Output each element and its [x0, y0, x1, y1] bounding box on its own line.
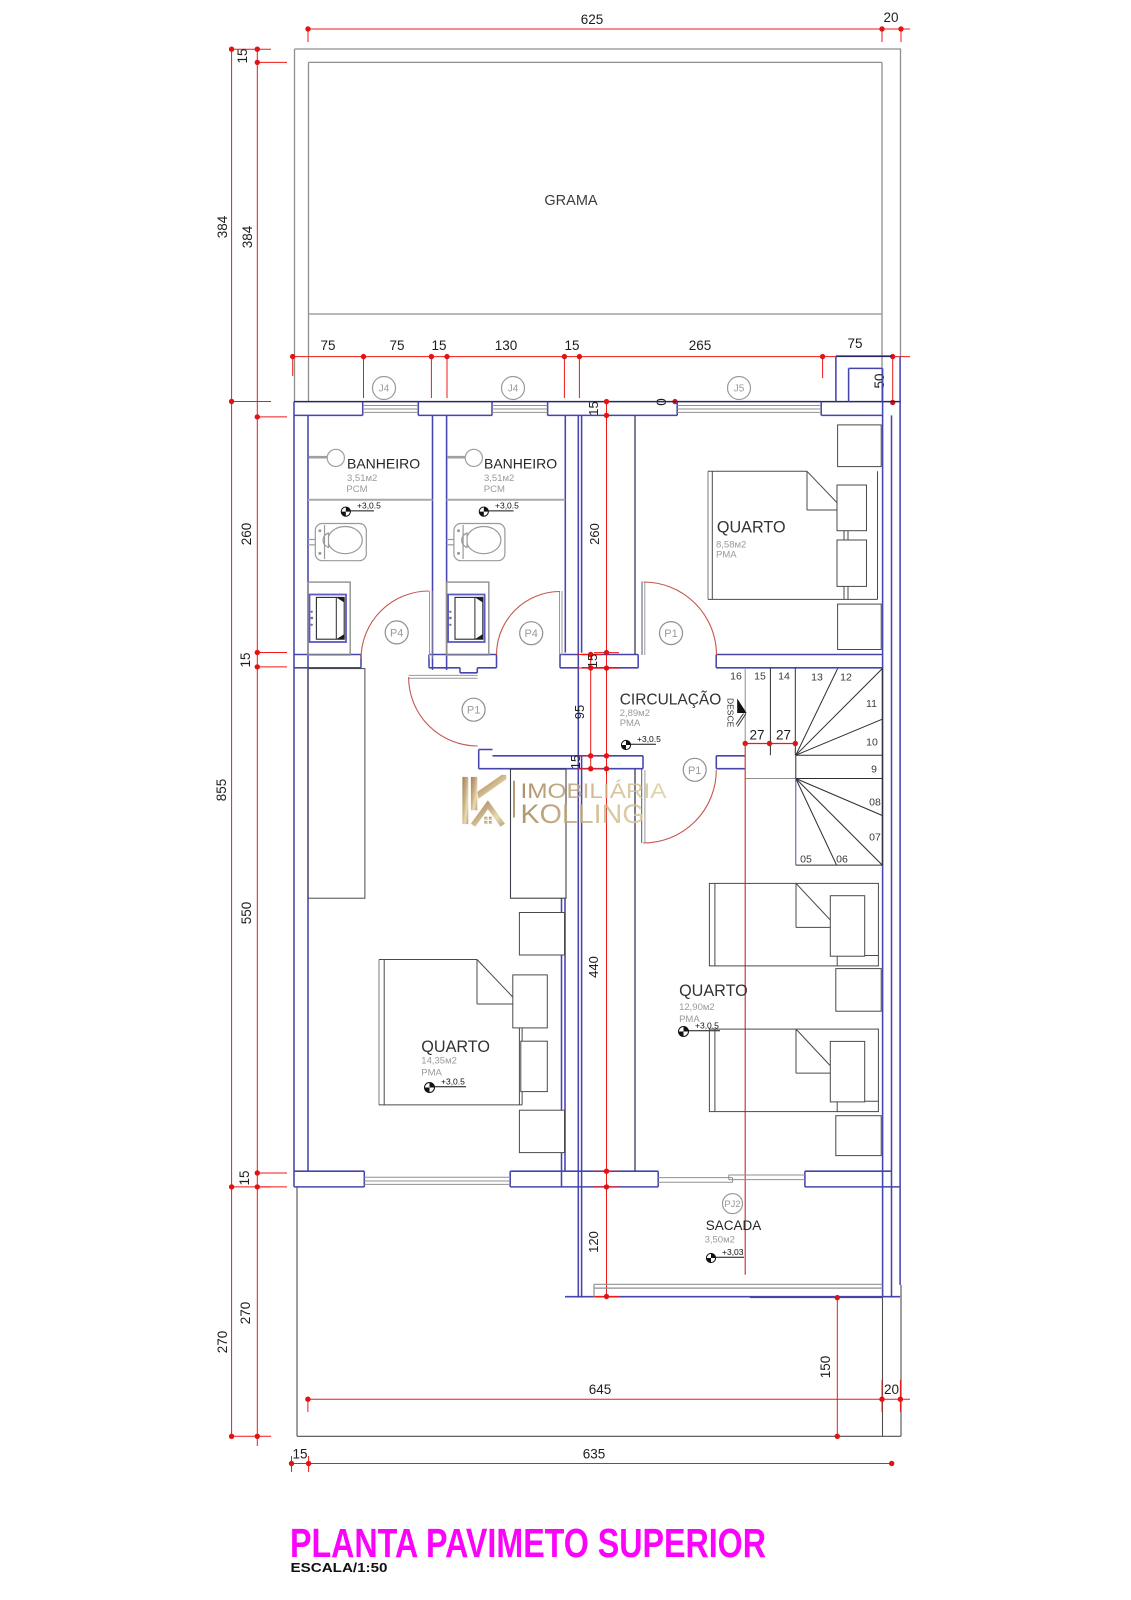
svg-text:635: 635 [583, 1447, 606, 1462]
svg-text:06: 06 [836, 854, 848, 866]
svg-text:95: 95 [572, 705, 587, 719]
svg-text:J5: J5 [734, 384, 745, 395]
svg-text:75: 75 [320, 338, 335, 353]
svg-text:07: 07 [869, 832, 881, 844]
svg-text:260: 260 [587, 523, 602, 545]
svg-text:265: 265 [689, 338, 712, 353]
svg-text:75: 75 [389, 338, 404, 353]
svg-text:9: 9 [871, 764, 877, 776]
svg-text:DESCE: DESCE [726, 698, 736, 728]
svg-text:+3,0.5: +3,0.5 [357, 501, 381, 511]
svg-text:+3,0.5: +3,0.5 [495, 501, 519, 511]
svg-text:15: 15 [237, 1170, 252, 1185]
svg-text:SACADA: SACADA [706, 1218, 762, 1233]
svg-text:3,50м2: 3,50м2 [705, 1234, 735, 1245]
svg-text:645: 645 [589, 1382, 612, 1397]
svg-text:15: 15 [754, 671, 766, 683]
svg-text:P1: P1 [664, 628, 677, 640]
svg-text:27: 27 [749, 728, 764, 743]
svg-text:120: 120 [586, 1231, 601, 1253]
svg-text:PMA: PMA [421, 1068, 442, 1079]
svg-text:J4: J4 [508, 384, 519, 395]
svg-text:27: 27 [776, 728, 791, 743]
svg-text:08: 08 [869, 797, 881, 809]
svg-text:BANHEIRO: BANHEIRO [347, 456, 420, 472]
svg-text:+3,03: +3,03 [722, 1247, 744, 1257]
svg-text:15: 15 [235, 48, 250, 63]
svg-text:16: 16 [730, 671, 742, 683]
svg-text:384: 384 [240, 225, 255, 248]
svg-text:ESCALA/1:50: ESCALA/1:50 [291, 1560, 388, 1575]
svg-text:384: 384 [215, 215, 230, 238]
svg-text:10: 10 [866, 737, 878, 749]
svg-text:P1: P1 [688, 765, 701, 777]
svg-text:14: 14 [778, 671, 790, 683]
svg-text:12: 12 [840, 672, 852, 684]
svg-text:270: 270 [238, 1302, 253, 1325]
svg-text:75: 75 [847, 336, 862, 351]
svg-text:3,51м2: 3,51м2 [484, 473, 514, 484]
svg-text:12,90м2: 12,90м2 [679, 1002, 715, 1013]
svg-text:150: 150 [818, 1356, 833, 1379]
svg-text:50: 50 [872, 373, 887, 388]
svg-text:625: 625 [581, 12, 604, 27]
svg-text:15: 15 [564, 338, 579, 353]
svg-text:05: 05 [800, 854, 812, 866]
svg-text:J4: J4 [379, 384, 390, 395]
svg-text:QUARTO: QUARTO [679, 982, 748, 1000]
svg-text:P1: P1 [467, 705, 480, 717]
svg-text:14,35м2: 14,35м2 [421, 1056, 457, 1067]
svg-text:QUARTO: QUARTO [421, 1038, 490, 1056]
svg-text:QUARTO: QUARTO [717, 519, 786, 537]
svg-text:PMA: PMA [716, 550, 737, 561]
svg-text:P4: P4 [524, 628, 537, 640]
svg-text:PCM: PCM [346, 484, 367, 495]
svg-text:+3,0.5: +3,0.5 [637, 734, 661, 744]
svg-text:15: 15 [431, 338, 446, 353]
svg-text:260: 260 [239, 523, 254, 546]
svg-text:20: 20 [884, 1382, 899, 1397]
svg-text:P4: P4 [390, 627, 403, 639]
svg-text:BANHEIRO: BANHEIRO [484, 456, 557, 472]
svg-text:3,51м2: 3,51м2 [347, 473, 377, 484]
svg-text:550: 550 [239, 902, 254, 925]
svg-text:15: 15 [292, 1447, 307, 1462]
svg-text:20: 20 [883, 10, 898, 25]
svg-text:13: 13 [811, 672, 823, 684]
svg-text:15: 15 [568, 755, 583, 769]
svg-text:GRAMA: GRAMA [544, 193, 598, 209]
svg-text:CIRCULAÇÃO: CIRCULAÇÃO [620, 691, 722, 708]
svg-text:PJ2: PJ2 [724, 1199, 740, 1210]
svg-text:440: 440 [586, 956, 601, 978]
svg-text:15: 15 [586, 401, 601, 415]
svg-text:270: 270 [215, 1331, 230, 1354]
svg-text:130: 130 [495, 338, 518, 353]
svg-text:PCM: PCM [484, 484, 505, 495]
svg-text:+3,0.5: +3,0.5 [441, 1076, 465, 1086]
svg-text:11: 11 [866, 698, 877, 710]
svg-text:KOLLING: KOLLING [521, 799, 645, 829]
svg-text:15: 15 [585, 654, 600, 668]
svg-text:15: 15 [238, 652, 253, 667]
svg-text:PMA: PMA [620, 718, 641, 729]
svg-text:855: 855 [214, 779, 229, 802]
